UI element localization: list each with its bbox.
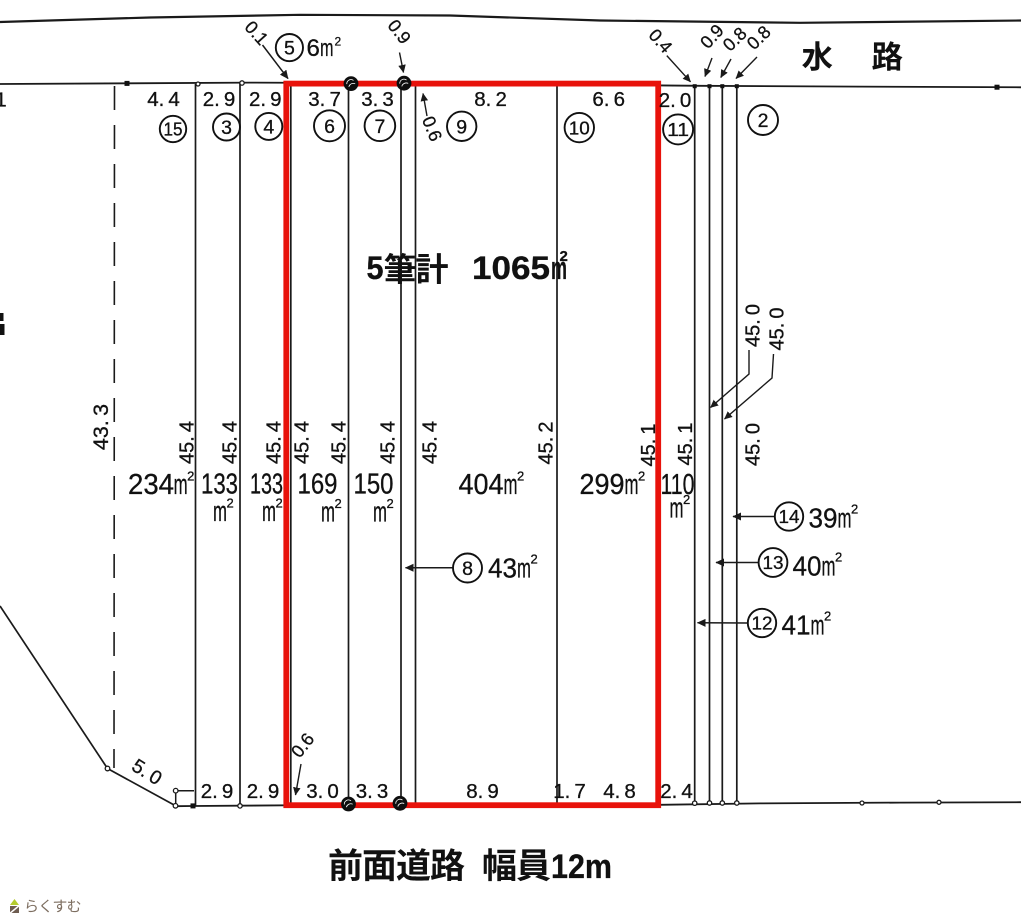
svg-text:41: 41: [782, 610, 811, 641]
svg-text:m: m: [838, 503, 852, 534]
svg-text:m: m: [321, 497, 335, 529]
svg-text:234: 234: [128, 469, 174, 501]
svg-text:2: 2: [683, 492, 690, 507]
svg-text:11: 11: [667, 119, 689, 140]
svg-text:8. 9: 8. 9: [466, 780, 499, 803]
svg-text:43: 43: [488, 553, 517, 584]
svg-text:43. 3: 43. 3: [89, 404, 113, 450]
svg-text:5: 5: [284, 38, 295, 60]
svg-text:2: 2: [276, 496, 283, 511]
svg-text:2. 4: 2. 4: [660, 780, 693, 803]
svg-text:4. 4: 4. 4: [147, 88, 180, 111]
svg-text:2: 2: [835, 550, 842, 565]
svg-text:m: m: [822, 551, 836, 582]
svg-text:2: 2: [758, 110, 769, 132]
svg-text:3. 3: 3. 3: [356, 780, 389, 803]
svg-text:m: m: [504, 469, 518, 501]
svg-text:m: m: [625, 469, 639, 501]
svg-text:1065: 1065: [472, 250, 550, 286]
svg-text:1: 1: [0, 89, 7, 112]
svg-text:3. 0: 3. 0: [306, 780, 339, 803]
svg-text:40: 40: [793, 551, 822, 582]
svg-text:13: 13: [763, 552, 784, 573]
svg-text:45. 4: 45. 4: [420, 421, 442, 464]
svg-text:3. 3: 3. 3: [361, 88, 394, 111]
svg-text:10: 10: [569, 117, 590, 138]
svg-text:2. 9: 2. 9: [203, 88, 236, 111]
svg-text:2. 9: 2. 9: [247, 780, 280, 803]
svg-text:2: 2: [517, 469, 524, 484]
svg-text:6: 6: [307, 35, 320, 62]
svg-text:12: 12: [752, 613, 773, 634]
svg-text:45. 4: 45. 4: [292, 421, 314, 464]
svg-text:m: m: [517, 553, 531, 584]
svg-text:9: 9: [456, 116, 467, 138]
svg-text:3. 7: 3. 7: [308, 88, 341, 111]
svg-text:45. 1: 45. 1: [638, 424, 660, 467]
svg-text:45. 1: 45. 1: [675, 423, 697, 466]
svg-text:45. 4: 45. 4: [177, 421, 199, 464]
svg-text:2: 2: [335, 35, 342, 49]
svg-text:45. 0: 45. 0: [767, 308, 789, 351]
svg-text:m: m: [320, 35, 334, 62]
svg-text:14: 14: [779, 506, 800, 527]
svg-text:6. 6: 6. 6: [592, 88, 625, 111]
svg-text:45. 4: 45. 4: [264, 421, 286, 464]
svg-text:2: 2: [824, 609, 831, 624]
svg-text:45. 0: 45. 0: [743, 423, 765, 466]
svg-text:2. 9: 2. 9: [201, 780, 234, 803]
svg-text:45. 4: 45. 4: [378, 421, 400, 464]
svg-text:2: 2: [531, 552, 538, 567]
svg-text:45. 4: 45. 4: [220, 421, 242, 464]
svg-text:39: 39: [809, 503, 838, 534]
svg-text:8: 8: [462, 558, 473, 580]
svg-text:2: 2: [638, 469, 645, 484]
svg-text:2. 9: 2. 9: [249, 88, 282, 111]
svg-text:2: 2: [387, 496, 394, 511]
svg-text:15: 15: [164, 119, 183, 140]
svg-text:2: 2: [851, 502, 858, 517]
svg-text:404: 404: [459, 469, 504, 501]
svg-text:45. 0: 45. 0: [743, 304, 765, 347]
svg-text:m: m: [213, 496, 227, 528]
svg-text:m: m: [373, 497, 387, 529]
svg-text:6: 6: [324, 116, 335, 138]
svg-text:4. 8: 4. 8: [603, 780, 636, 803]
svg-text:m: m: [811, 610, 825, 641]
svg-text:2. 0: 2. 0: [659, 89, 692, 112]
svg-text:2: 2: [335, 496, 342, 511]
svg-text:4: 4: [263, 116, 274, 138]
svg-text:m: m: [262, 496, 276, 528]
svg-text:299: 299: [580, 469, 625, 501]
svg-text:2: 2: [227, 496, 234, 511]
svg-text:1. 7: 1. 7: [553, 780, 586, 803]
svg-text:7: 7: [374, 116, 385, 138]
svg-text:5: 5: [367, 250, 384, 286]
svg-text:45. 2: 45. 2: [536, 422, 558, 465]
svg-text:2: 2: [187, 469, 194, 484]
svg-text:45. 4: 45. 4: [329, 421, 351, 464]
svg-text:12m: 12m: [551, 848, 612, 886]
svg-text:8. 2: 8. 2: [474, 88, 507, 111]
svg-text:m: m: [174, 469, 188, 501]
svg-text:3: 3: [221, 117, 232, 139]
svg-text:m: m: [670, 493, 684, 525]
svg-text:2: 2: [560, 248, 568, 265]
